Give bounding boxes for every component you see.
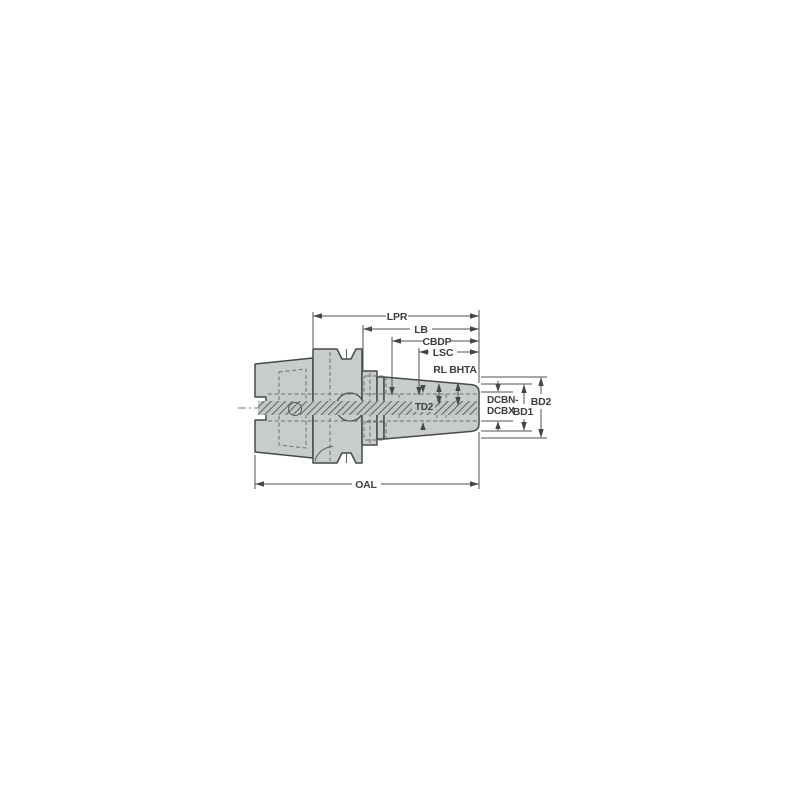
label-dcbn: DCBN-	[487, 395, 518, 406]
label-bd2: BD2	[531, 396, 552, 408]
label-td2: TD2	[415, 402, 434, 413]
label-bhta: BHTA	[449, 364, 477, 376]
label-lpr: LPR	[387, 311, 408, 323]
label-lsc: LSC	[433, 347, 454, 359]
label-rl: RL	[433, 364, 447, 376]
label-oal: OAL	[355, 479, 377, 491]
technical-drawing-page: LPR LB CBDP LSC RL BHTA TD2 DCBN- DCBX B…	[0, 0, 800, 800]
coolant-tube-hatch	[258, 401, 477, 415]
label-lb: LB	[414, 324, 428, 336]
label-dcbx: DCBX	[487, 406, 515, 417]
tool-holder-dimension-drawing: LPR LB CBDP LSC RL BHTA TD2 DCBN- DCBX B…	[0, 0, 800, 800]
